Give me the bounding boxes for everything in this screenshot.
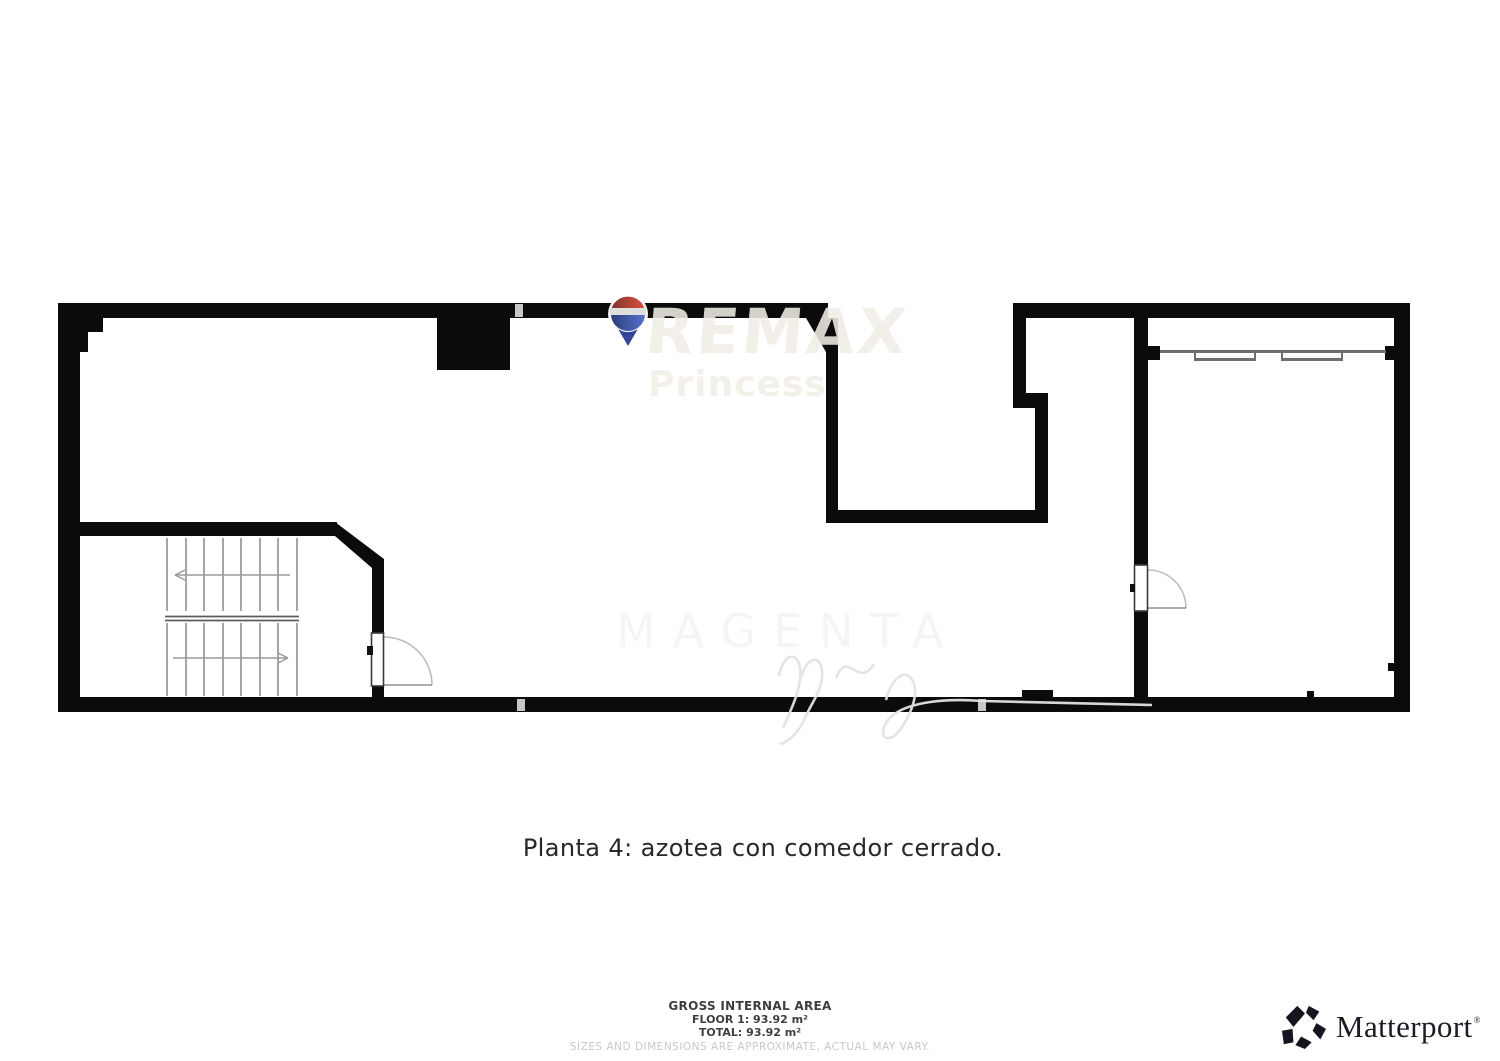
right-room-wall: [1134, 318, 1148, 565]
matterport-icon: [1281, 1002, 1327, 1050]
upper-flight: [167, 538, 297, 611]
stair-door: [367, 633, 432, 686]
sliding-window: [1160, 350, 1386, 361]
stair-enclosure-wall: [58, 522, 337, 536]
matterport-wordmark: Matterport®: [1336, 1011, 1481, 1042]
floor-caption: Planta 4: azotea con comedor cerrado.: [0, 834, 1500, 862]
right-room-door: [1130, 565, 1186, 611]
floor-area-line: FLOOR 1: 93.92 m²: [0, 1013, 1500, 1026]
disclaimer-line: SIZES AND DIMENSIONS ARE APPROXIMATE, AC…: [0, 1041, 1500, 1054]
corner-pillar: [58, 303, 103, 332]
lower-flight: [167, 623, 297, 696]
bottom-exterior-wall: [58, 697, 1410, 712]
left-exterior-wall: [58, 303, 80, 712]
remax-watermark-office: Princess: [648, 367, 827, 403]
staircase: [165, 538, 299, 696]
matterport-logo: Matterport®: [1281, 1002, 1481, 1050]
wall-break: [515, 304, 523, 317]
remax-watermark-text: REMAX: [643, 301, 911, 363]
floorplan-page: REMAX Princess MAGENTA Planta 4: azotea …: [0, 0, 1500, 1061]
area-summary: GROSS INTERNAL AREA FLOOR 1: 93.92 m² TO…: [0, 1000, 1500, 1054]
stair-arrow-left: [175, 570, 290, 580]
total-area-line: TOTAL: 93.92 m²: [0, 1026, 1500, 1039]
remax-balloon-icon: [608, 294, 648, 347]
gross-area-title: GROSS INTERNAL AREA: [0, 1000, 1500, 1013]
pillar: [437, 318, 510, 370]
wall-break: [517, 699, 525, 711]
matterport-trademark: ®: [1474, 1015, 1481, 1025]
stair-arrow-right: [173, 653, 288, 663]
ghost-watermark-text: MAGENTA: [616, 608, 960, 654]
floor-plan-svg: [0, 0, 1500, 1061]
right-exterior-wall: [1394, 303, 1410, 712]
